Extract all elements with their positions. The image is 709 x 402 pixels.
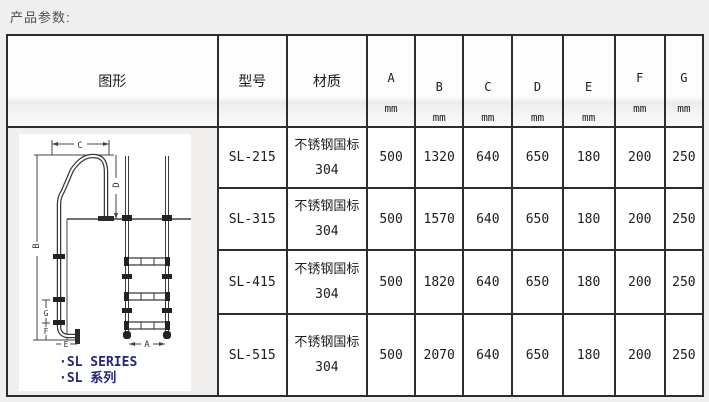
dim-unit: mm bbox=[416, 111, 462, 124]
header-dim-d: D mm bbox=[512, 35, 562, 127]
anchor-mark bbox=[53, 297, 65, 302]
header-dim-e: E mm bbox=[563, 35, 615, 127]
arrow-right-icon bbox=[103, 142, 109, 146]
value-c: 640 bbox=[463, 250, 512, 314]
table-row: C B D bbox=[7, 127, 703, 188]
product-spec-table: 图形 型号 材质 A mm B mm C mm D mm E mm F mm G… bbox=[6, 34, 704, 397]
model-cell: SL-215 bbox=[218, 127, 287, 188]
rail-mid-mark bbox=[122, 274, 132, 279]
ladder-diagram-svg: C B D bbox=[19, 134, 191, 391]
header-material: 材质 bbox=[287, 35, 367, 127]
rail-anchor bbox=[162, 215, 172, 221]
value-b: 1820 bbox=[415, 250, 463, 314]
header-dim-f: F mm bbox=[615, 35, 665, 127]
header-dim-g: G mm bbox=[665, 35, 703, 127]
value-b: 2070 bbox=[415, 314, 463, 396]
value-e: 180 bbox=[563, 188, 615, 250]
dim-label-c: C bbox=[77, 141, 82, 151]
model-cell: SL-415 bbox=[218, 250, 287, 314]
dim-label-d: D bbox=[112, 182, 122, 187]
dim-label-g: G bbox=[44, 309, 49, 318]
dim-unit: mm bbox=[368, 102, 414, 115]
dim-label-e: E bbox=[64, 340, 69, 349]
material-cell: 不锈钢国标 304 bbox=[287, 127, 367, 188]
dim-label-f: F bbox=[44, 327, 49, 336]
dim-unit: mm bbox=[564, 111, 614, 124]
ladder-rungs bbox=[124, 257, 170, 330]
anchor-mark bbox=[53, 320, 65, 325]
header-model: 型号 bbox=[218, 35, 287, 127]
header-dim-b: B mm bbox=[415, 35, 463, 127]
rail-mid-mark bbox=[162, 308, 172, 313]
series-caption-zh: ·SL 系列 bbox=[59, 370, 116, 386]
series-caption-en: ·SL SERIES bbox=[59, 355, 137, 370]
value-g: 250 bbox=[665, 314, 703, 396]
value-d: 650 bbox=[512, 127, 562, 188]
value-a: 500 bbox=[367, 127, 415, 188]
rail-mid-mark bbox=[162, 274, 172, 279]
material-cell: 不锈钢国标 304 bbox=[287, 314, 367, 396]
rail-foot bbox=[123, 331, 131, 339]
figure-cell: C B D bbox=[7, 127, 218, 396]
value-d: 650 bbox=[512, 250, 562, 314]
value-c: 640 bbox=[463, 188, 512, 250]
value-g: 250 bbox=[665, 188, 703, 250]
dim-letter: B bbox=[416, 80, 462, 94]
value-e: 180 bbox=[563, 314, 615, 396]
table-header-row: 图形 型号 材质 A mm B mm C mm D mm E mm F mm G… bbox=[7, 35, 703, 127]
model-cell: SL-515 bbox=[218, 314, 287, 396]
value-b: 1570 bbox=[415, 188, 463, 250]
dim-unit: mm bbox=[616, 102, 664, 115]
value-g: 250 bbox=[665, 127, 703, 188]
header-dim-c: C mm bbox=[463, 35, 512, 127]
dim-unit: mm bbox=[513, 111, 561, 124]
value-g: 250 bbox=[665, 250, 703, 314]
value-f: 200 bbox=[615, 314, 665, 396]
value-f: 200 bbox=[615, 188, 665, 250]
wall-flange bbox=[75, 329, 80, 344]
value-b: 1320 bbox=[415, 127, 463, 188]
dim-label-b: B bbox=[32, 243, 42, 248]
material-cell: 不锈钢国标 304 bbox=[287, 188, 367, 250]
value-d: 650 bbox=[512, 188, 562, 250]
value-a: 500 bbox=[367, 314, 415, 396]
value-a: 500 bbox=[367, 250, 415, 314]
anchor-mark bbox=[53, 254, 65, 259]
dim-letter: E bbox=[564, 80, 614, 94]
dim-letter: G bbox=[666, 71, 702, 85]
value-f: 200 bbox=[615, 250, 665, 314]
value-e: 180 bbox=[563, 127, 615, 188]
arrow-down-icon bbox=[114, 213, 118, 219]
value-c: 640 bbox=[463, 127, 512, 188]
arrow-left-icon bbox=[52, 142, 58, 146]
dim-letter: C bbox=[464, 80, 511, 94]
value-d: 650 bbox=[512, 314, 562, 396]
dim-unit: mm bbox=[464, 111, 511, 124]
dim-letter: F bbox=[616, 71, 664, 85]
dim-letter: A bbox=[368, 71, 414, 85]
value-f: 200 bbox=[615, 127, 665, 188]
value-c: 640 bbox=[463, 314, 512, 396]
dim-letter: D bbox=[513, 80, 561, 94]
header-figure: 图形 bbox=[7, 35, 218, 127]
ladder-diagram: C B D bbox=[19, 134, 191, 391]
model-cell: SL-315 bbox=[218, 188, 287, 250]
value-a: 500 bbox=[367, 188, 415, 250]
value-e: 180 bbox=[563, 250, 615, 314]
material-cell: 不锈钢国标 304 bbox=[287, 250, 367, 314]
page-title: 产品参数: bbox=[0, 0, 709, 26]
header-dim-a: A mm bbox=[367, 35, 415, 127]
dim-unit: mm bbox=[666, 102, 702, 115]
rail-anchor bbox=[122, 215, 132, 221]
deck-flange bbox=[98, 216, 114, 221]
dim-label-a: A bbox=[144, 340, 150, 350]
rail-foot bbox=[163, 331, 171, 339]
rail-mid-mark bbox=[122, 308, 132, 313]
